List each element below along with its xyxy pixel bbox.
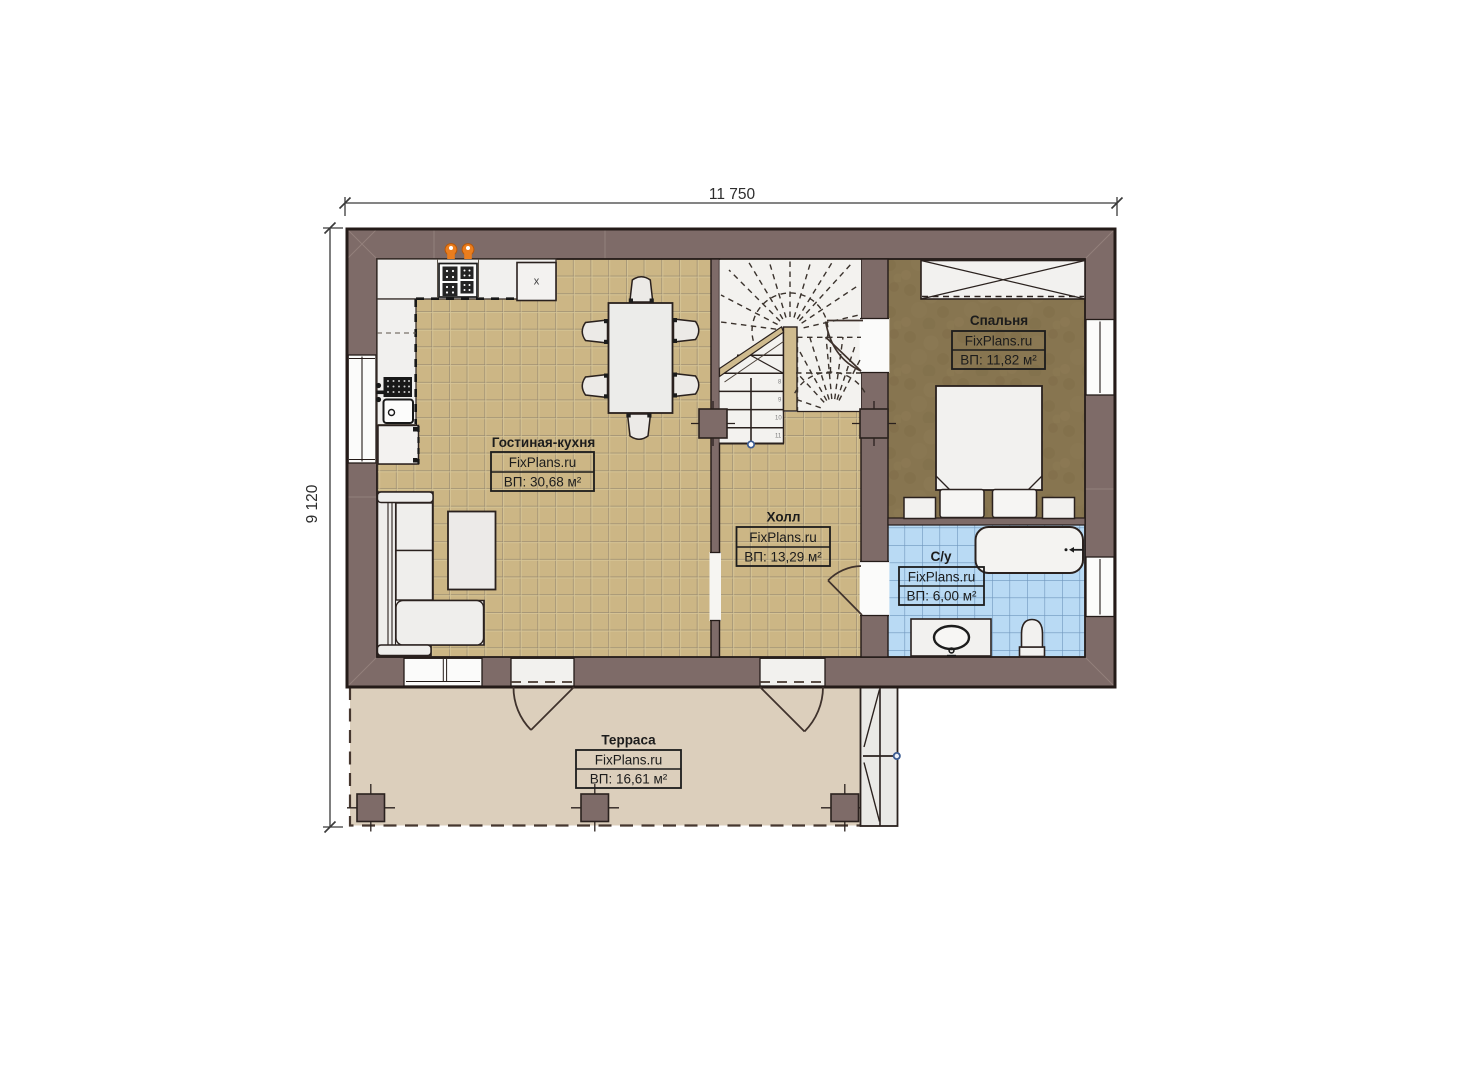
svg-text:ВП: 16,61 м²: ВП: 16,61 м² — [590, 772, 668, 787]
svg-text:FixPlans.ru: FixPlans.ru — [509, 455, 577, 470]
svg-text:ВП: 30,68 м²: ВП: 30,68 м² — [504, 475, 582, 490]
svg-text:С/у: С/у — [930, 549, 952, 564]
svg-text:FixPlans.ru: FixPlans.ru — [965, 334, 1033, 349]
svg-text:Спальня: Спальня — [970, 313, 1028, 328]
svg-text:11: 11 — [775, 434, 782, 440]
svg-text:FixPlans.ru: FixPlans.ru — [595, 753, 663, 768]
svg-text:Холл: Холл — [767, 510, 801, 525]
svg-text:ВП: 6,00 м²: ВП: 6,00 м² — [906, 589, 977, 604]
svg-text:10: 10 — [775, 416, 782, 422]
svg-text:Гостиная-кухня: Гостиная-кухня — [492, 435, 595, 450]
svg-text:ВП: 13,29 м²: ВП: 13,29 м² — [744, 550, 822, 565]
svg-text:11 750: 11 750 — [709, 186, 756, 203]
svg-text:FixPlans.ru: FixPlans.ru — [749, 530, 817, 545]
svg-text:x: x — [534, 276, 540, 288]
svg-text:ВП: 11,82 м²: ВП: 11,82 м² — [960, 353, 1037, 368]
svg-text:Терраса: Терраса — [601, 733, 656, 748]
svg-text:9 120: 9 120 — [304, 484, 321, 523]
svg-text:FixPlans.ru: FixPlans.ru — [908, 570, 976, 585]
